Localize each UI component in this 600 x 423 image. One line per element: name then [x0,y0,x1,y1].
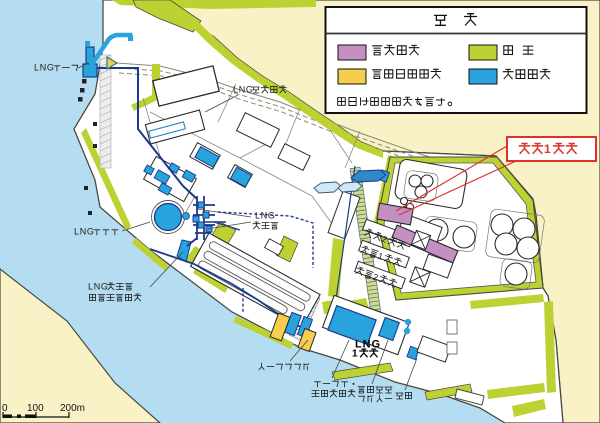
svg-text:LNG: LNG [88,282,109,292]
svg-text:1: 1 [544,142,552,156]
svg-text:LNG: LNG [255,211,276,221]
svg-text:LNG: LNG [355,339,381,351]
svg-text:LNG: LNG [34,63,55,73]
svg-text:1: 1 [352,349,358,360]
svg-text:LNG: LNG [233,85,254,95]
svg-text:200m: 200m [60,403,85,414]
svg-text:LNG: LNG [74,227,95,237]
